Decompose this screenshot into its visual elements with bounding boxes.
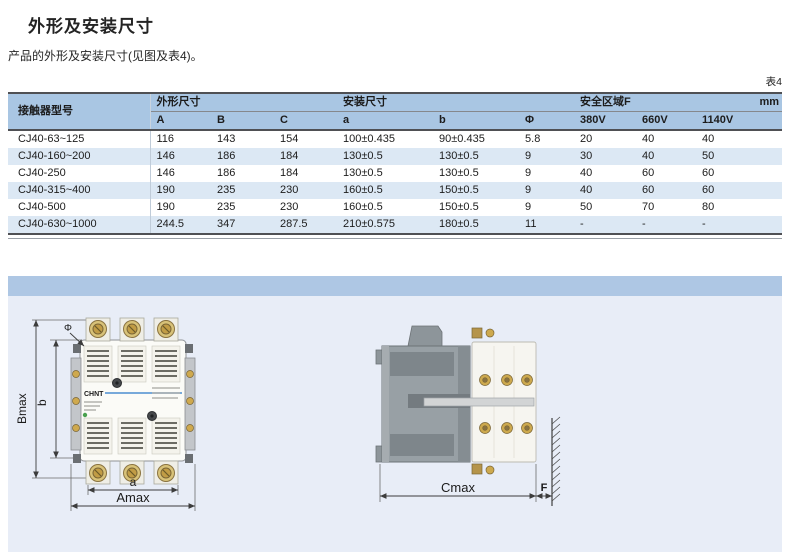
cell-value: 50 [574, 199, 636, 216]
cell-value: 186 [211, 165, 274, 182]
table-row: CJ40-630~1000244.5347287.5210±0.575180±0… [8, 216, 782, 234]
cell-value: 143 [211, 130, 274, 148]
cell-value: 60 [696, 165, 782, 182]
cell-model: CJ40-500 [8, 199, 150, 216]
cell-value: 130±0.5 [433, 165, 519, 182]
unit-label: mm [759, 94, 779, 111]
cell-value: 190 [150, 199, 211, 216]
col-group-phi-spacer [519, 93, 574, 112]
table-row: CJ40-315~400190235230160±0.5150±0.594060… [8, 182, 782, 199]
cell-value: 154 [274, 130, 337, 148]
dim-label-a: a [130, 475, 137, 489]
col-header-b: b [433, 112, 519, 131]
cell-value: 60 [636, 182, 696, 199]
cell-value: 11 [519, 216, 574, 234]
cell-value: 130±0.5 [337, 148, 433, 165]
cell-value: 184 [274, 148, 337, 165]
table-row: CJ40-160~200146186184130±0.5130±0.593040… [8, 148, 782, 165]
cell-value: 244.5 [150, 216, 211, 234]
cell-value: 150±0.5 [433, 182, 519, 199]
col-header-660v: 660V [636, 112, 696, 131]
cell-value: 230 [274, 182, 337, 199]
svg-text:CHNT: CHNT [84, 391, 104, 398]
dim-label-bmax: Bmax [15, 393, 29, 424]
col-header-model: 接触器型号 [8, 93, 150, 130]
cell-value: 287.5 [274, 216, 337, 234]
cell-model: CJ40-630~1000 [8, 216, 150, 234]
cell-value: - [696, 216, 782, 234]
cell-value: 9 [519, 148, 574, 165]
table-row: CJ40-500190235230160±0.5150±0.59507080 [8, 199, 782, 216]
page-title: 外形及安装尺寸 [28, 12, 154, 37]
cell-value: 40 [574, 182, 636, 199]
cell-value: 160±0.5 [337, 199, 433, 216]
safe-group-label: 安全区域F [580, 96, 631, 108]
cell-value: 235 [211, 199, 274, 216]
cell-value: 9 [519, 199, 574, 216]
col-header-A: A [150, 112, 211, 131]
cell-value: 347 [211, 216, 274, 234]
cell-model: CJ40-63~125 [8, 130, 150, 148]
cell-value: 60 [636, 165, 696, 182]
front-view-drawing: CHNT Bmax b Φ a A [14, 306, 344, 546]
cell-value: 210±0.575 [337, 216, 433, 234]
cell-value: 80 [696, 199, 782, 216]
cell-model: CJ40-250 [8, 165, 150, 182]
cell-value: 130±0.5 [433, 148, 519, 165]
cell-value: - [636, 216, 696, 234]
cell-value: 5.8 [519, 130, 574, 148]
dim-label-phi: Φ [64, 323, 72, 334]
cell-value: 20 [574, 130, 636, 148]
dimensions-table: 接触器型号 外形尺寸 安装尺寸 安全区域F mm A B C a b Φ 380… [8, 92, 782, 235]
side-view-drawing: Cmax F [368, 306, 628, 546]
cell-value: 90±0.435 [433, 130, 519, 148]
cell-value: 30 [574, 148, 636, 165]
cell-value: 100±0.435 [337, 130, 433, 148]
col-group-safe: 安全区域F mm [574, 93, 782, 112]
col-header-C: C [274, 112, 337, 131]
top-terminals [86, 318, 178, 341]
panel-top-band [8, 276, 782, 296]
cell-value: 40 [696, 130, 782, 148]
cell-value: 9 [519, 182, 574, 199]
col-header-1140v: 1140V [696, 112, 782, 131]
cell-value: 50 [696, 148, 782, 165]
cell-value: 9 [519, 165, 574, 182]
intro-text: 产品的外形及安装尺寸(见图及表4)。 [8, 47, 203, 64]
table-row: CJ40-250146186184130±0.5130±0.59406060 [8, 165, 782, 182]
cell-value: 230 [274, 199, 337, 216]
mounting-wall-hatch [552, 417, 560, 506]
cell-value: 40 [636, 130, 696, 148]
cell-value: 60 [696, 182, 782, 199]
cell-value: 146 [150, 165, 211, 182]
cell-value: 235 [211, 182, 274, 199]
table-caption: 表4 [766, 74, 782, 89]
dim-label-b: b [35, 399, 49, 406]
table-bottom-rule [8, 238, 782, 239]
cell-value: 186 [211, 148, 274, 165]
table-row: CJ40-63~125116143154100±0.43590±0.4355.8… [8, 130, 782, 148]
header-row-groups: 接触器型号 外形尺寸 安装尺寸 安全区域F mm [8, 93, 782, 112]
dim-label-cmax: Cmax [441, 480, 475, 495]
cell-value: - [574, 216, 636, 234]
cell-value: 130±0.5 [337, 165, 433, 182]
col-group-outline: 外形尺寸 [150, 93, 337, 112]
cell-value: 180±0.5 [433, 216, 519, 234]
col-header-380v: 380V [574, 112, 636, 131]
cell-model: CJ40-315~400 [8, 182, 150, 199]
col-header-a: a [337, 112, 433, 131]
dim-label-amax: Amax [116, 490, 150, 505]
diagram-panel: CHNT Bmax b Φ a A [8, 276, 782, 552]
col-header-phi: Φ [519, 112, 574, 131]
cell-value: 190 [150, 182, 211, 199]
dim-label-f: F [541, 482, 548, 494]
cert-mark [83, 413, 87, 417]
cell-model: CJ40-160~200 [8, 148, 150, 165]
col-group-mount: 安装尺寸 [337, 93, 519, 112]
cell-value: 116 [150, 130, 211, 148]
cell-value: 160±0.5 [337, 182, 433, 199]
cell-value: 184 [274, 165, 337, 182]
armature-bar [424, 398, 534, 406]
contactor-side-body [376, 326, 470, 462]
cell-value: 40 [574, 165, 636, 182]
cell-value: 146 [150, 148, 211, 165]
col-header-B: B [211, 112, 274, 131]
cell-value: 40 [636, 148, 696, 165]
cell-value: 70 [636, 199, 696, 216]
cell-value: 150±0.5 [433, 199, 519, 216]
